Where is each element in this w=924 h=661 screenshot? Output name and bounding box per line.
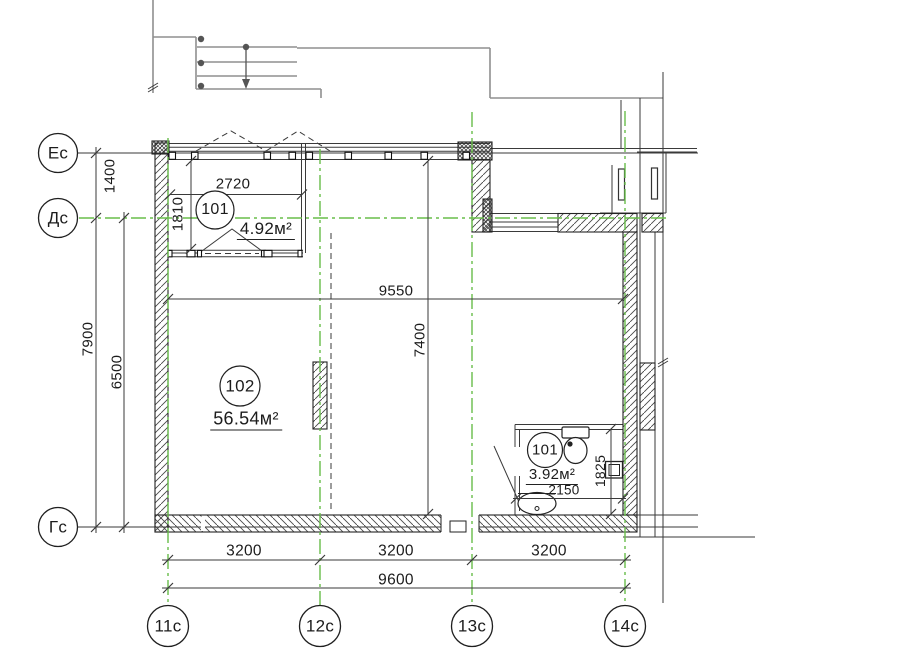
building-outline	[153, 0, 663, 98]
dim-label-1400: 1400	[103, 159, 118, 194]
dim-label-9550: 9550	[379, 284, 414, 299]
axis-bubble-label-12c: 12с	[306, 618, 334, 635]
axis-bubble-label-gc: Гс	[49, 519, 67, 536]
dim-label-3200-bay3: 3200	[531, 543, 567, 559]
dim-label-6500: 6500	[110, 355, 125, 390]
axis-bubble-label-14c: 14с	[611, 618, 639, 635]
axis-bubble-label-13c: 13с	[458, 618, 486, 635]
dim-label-2720: 2720	[216, 177, 251, 192]
dim-label-7400: 7400	[413, 323, 428, 358]
dim-label-9600: 9600	[378, 572, 414, 588]
axis-bubble-label-ec: Ес	[48, 145, 68, 162]
room-area-102: 56.54м²	[210, 410, 282, 431]
room-area-101-loggia: 4.92м²	[237, 220, 295, 240]
toilet-icon	[562, 427, 589, 464]
floor-plan-linework	[0, 0, 924, 661]
dim-label-1810: 1810	[171, 197, 186, 232]
room-tag-102: 102	[225, 378, 254, 395]
dim-label-3200-bay1: 3200	[226, 543, 262, 559]
room-tag-101-loggia: 101	[201, 202, 229, 218]
dim-label-3200-bay2: 3200	[378, 543, 414, 559]
dim-label-1825: 1825	[593, 455, 607, 487]
dim-label-7900: 7900	[81, 322, 96, 357]
room-tag-101-bath: 101	[532, 443, 558, 458]
floor-plan-canvas: Ес Дс Гс 11с 12с 13с 14с 101 4.92м² 102 …	[0, 0, 924, 661]
axis-bubbles	[39, 134, 646, 647]
axis-bubble-label-11c: 11с	[154, 618, 181, 635]
dim-label-2150: 2150	[548, 483, 579, 497]
wall-panel-icon	[606, 462, 623, 479]
axis-bubble-label-dc: Дс	[48, 210, 69, 227]
